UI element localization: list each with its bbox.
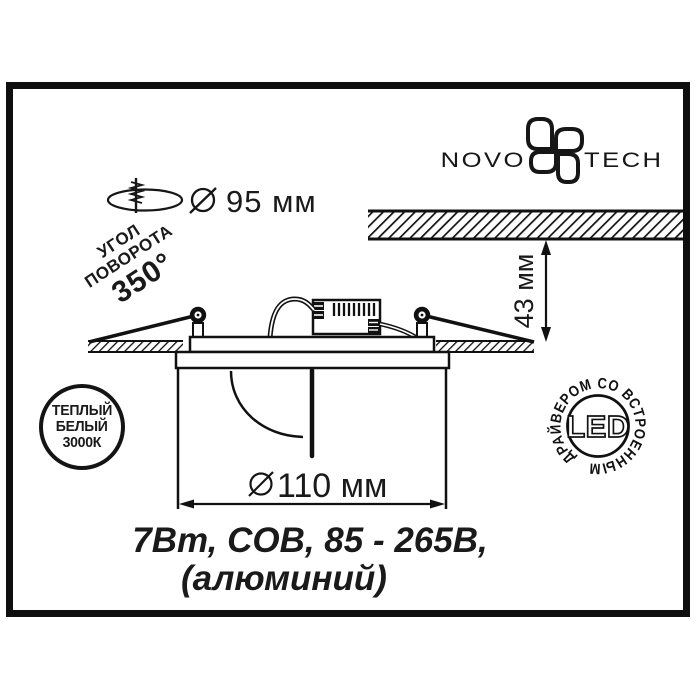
ceiling-cut-right xyxy=(436,341,534,352)
flower-icon xyxy=(528,119,582,182)
driver-box xyxy=(313,300,380,334)
spring-clip-left xyxy=(89,315,203,342)
led-label: LED xyxy=(566,409,630,444)
technical-drawing: ДРАЙВЕРОМ СО ВСТРОЕННЫМ LED xyxy=(0,0,700,700)
spec-sheet: NOVO TECH 95 мм УГОЛ ПОВОРОТА 350° 43 мм… xyxy=(0,0,700,700)
led-badge: ДРАЙВЕРОМ СО ВСТРОЕННЫМ LED xyxy=(546,375,648,477)
drill-hole-icon xyxy=(108,178,182,213)
diameter-icon-95 xyxy=(190,188,216,213)
fixture-body xyxy=(176,337,449,509)
ceiling-cut-left xyxy=(88,341,183,352)
clip-pivot-left xyxy=(190,307,206,323)
diameter-dimension-arrow xyxy=(179,500,445,509)
ceiling-section xyxy=(368,211,683,239)
wire-left xyxy=(270,299,314,338)
tilt-arc xyxy=(231,371,303,437)
height-dimension-arrow xyxy=(541,240,551,342)
clip-pivot-right xyxy=(414,307,430,323)
diameter-icon-110 xyxy=(249,472,273,496)
